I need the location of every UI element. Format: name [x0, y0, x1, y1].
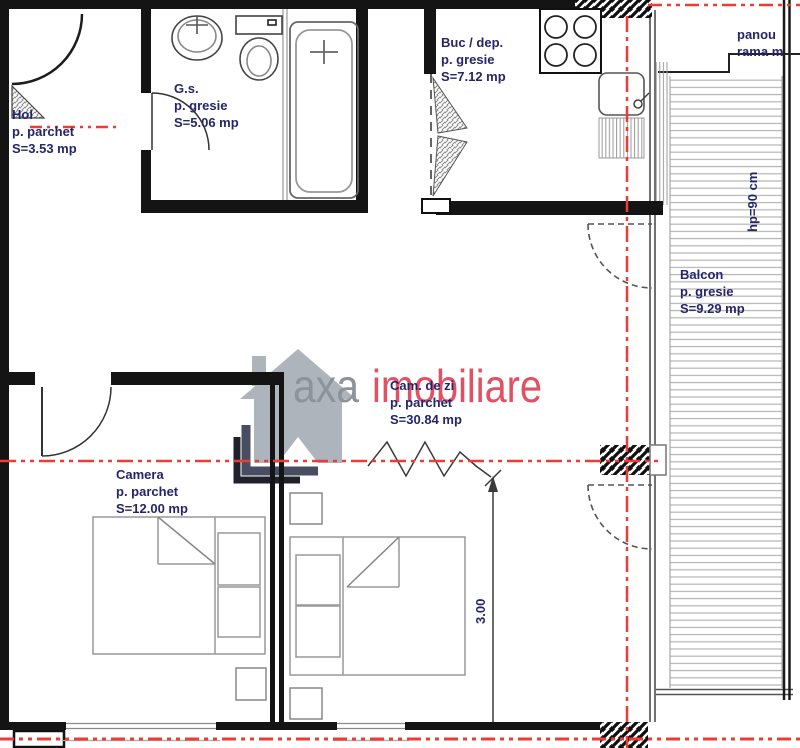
dimension-label: 3.00	[472, 599, 489, 624]
room-area: S=12.00 mp	[116, 500, 188, 517]
room-name: Balcon	[680, 266, 745, 283]
room-area: S=9.29 mp	[680, 300, 745, 317]
room-floor: p. gresie	[441, 51, 506, 68]
room-floor: p. gresie	[174, 97, 239, 114]
nightstand	[236, 668, 266, 700]
room-name: Cam. de zi	[390, 377, 462, 394]
bathtub-icon	[290, 22, 358, 198]
balcony-door-arc-1	[588, 224, 652, 288]
break-line-zigzag	[368, 442, 491, 477]
room-name: G.s.	[174, 80, 239, 97]
toilet-icon	[236, 16, 282, 80]
counter-hatch	[599, 118, 644, 158]
bed-icon-living	[290, 537, 465, 675]
room-floor: p. parchet	[116, 483, 188, 500]
room-name: Hol	[12, 106, 77, 123]
floor-plan: axa imobiliare	[0, 0, 800, 748]
kitchen-sink-icon	[599, 73, 649, 158]
kitchen-window-strip	[656, 62, 670, 205]
floor-plan-drawing: axa imobiliare	[0, 0, 800, 748]
parapet-height-annotation: hp=90 cm	[744, 172, 761, 232]
room-area: S=7.12 mp	[441, 68, 506, 85]
watermark-brand: axa	[293, 360, 359, 412]
sink-icon	[172, 16, 222, 60]
bed-icon-camera	[93, 517, 265, 654]
bath-partition	[283, 9, 287, 200]
wall-cap	[422, 199, 450, 213]
room-label-cam-de-zi: Cam. de zi p. parchet S=30.84 mp	[390, 377, 462, 428]
panou-annotation: panou rama m	[737, 26, 800, 60]
nightstand	[290, 493, 322, 524]
room-label-gs: G.s. p. gresie S=5.06 mp	[174, 80, 239, 131]
nightstand	[290, 688, 322, 719]
room-floor: p. parchet	[390, 394, 462, 411]
panou-line1: panou	[737, 26, 800, 43]
room-label-balcon: Balcon p. gresie S=9.29 mp	[680, 266, 745, 317]
room-area: S=3.53 mp	[12, 140, 77, 157]
panou-line2: rama m	[737, 43, 800, 60]
folding-door-icon	[431, 74, 467, 198]
camera-door-arc	[42, 387, 111, 456]
entry-door-arc	[12, 14, 82, 118]
room-floor: p. parchet	[12, 123, 77, 140]
balcony-door-arc-2	[588, 485, 652, 549]
pier-bottom	[600, 722, 648, 748]
room-floor: p. gresie	[680, 283, 745, 300]
stove-icon	[540, 9, 601, 73]
room-label-hol: Hol p. parchet S=3.53 mp	[12, 106, 77, 157]
room-area: S=5.06 mp	[174, 114, 239, 131]
balcony-decking	[650, 0, 800, 722]
room-area: S=30.84 mp	[390, 411, 462, 428]
room-label-camera: Camera p. parchet S=12.00 mp	[116, 466, 188, 517]
room-name: Camera	[116, 466, 188, 483]
room-name: Buc / dep.	[441, 34, 506, 51]
dimension-line	[485, 470, 501, 722]
room-label-buc: Buc / dep. p. gresie S=7.12 mp	[441, 34, 506, 85]
